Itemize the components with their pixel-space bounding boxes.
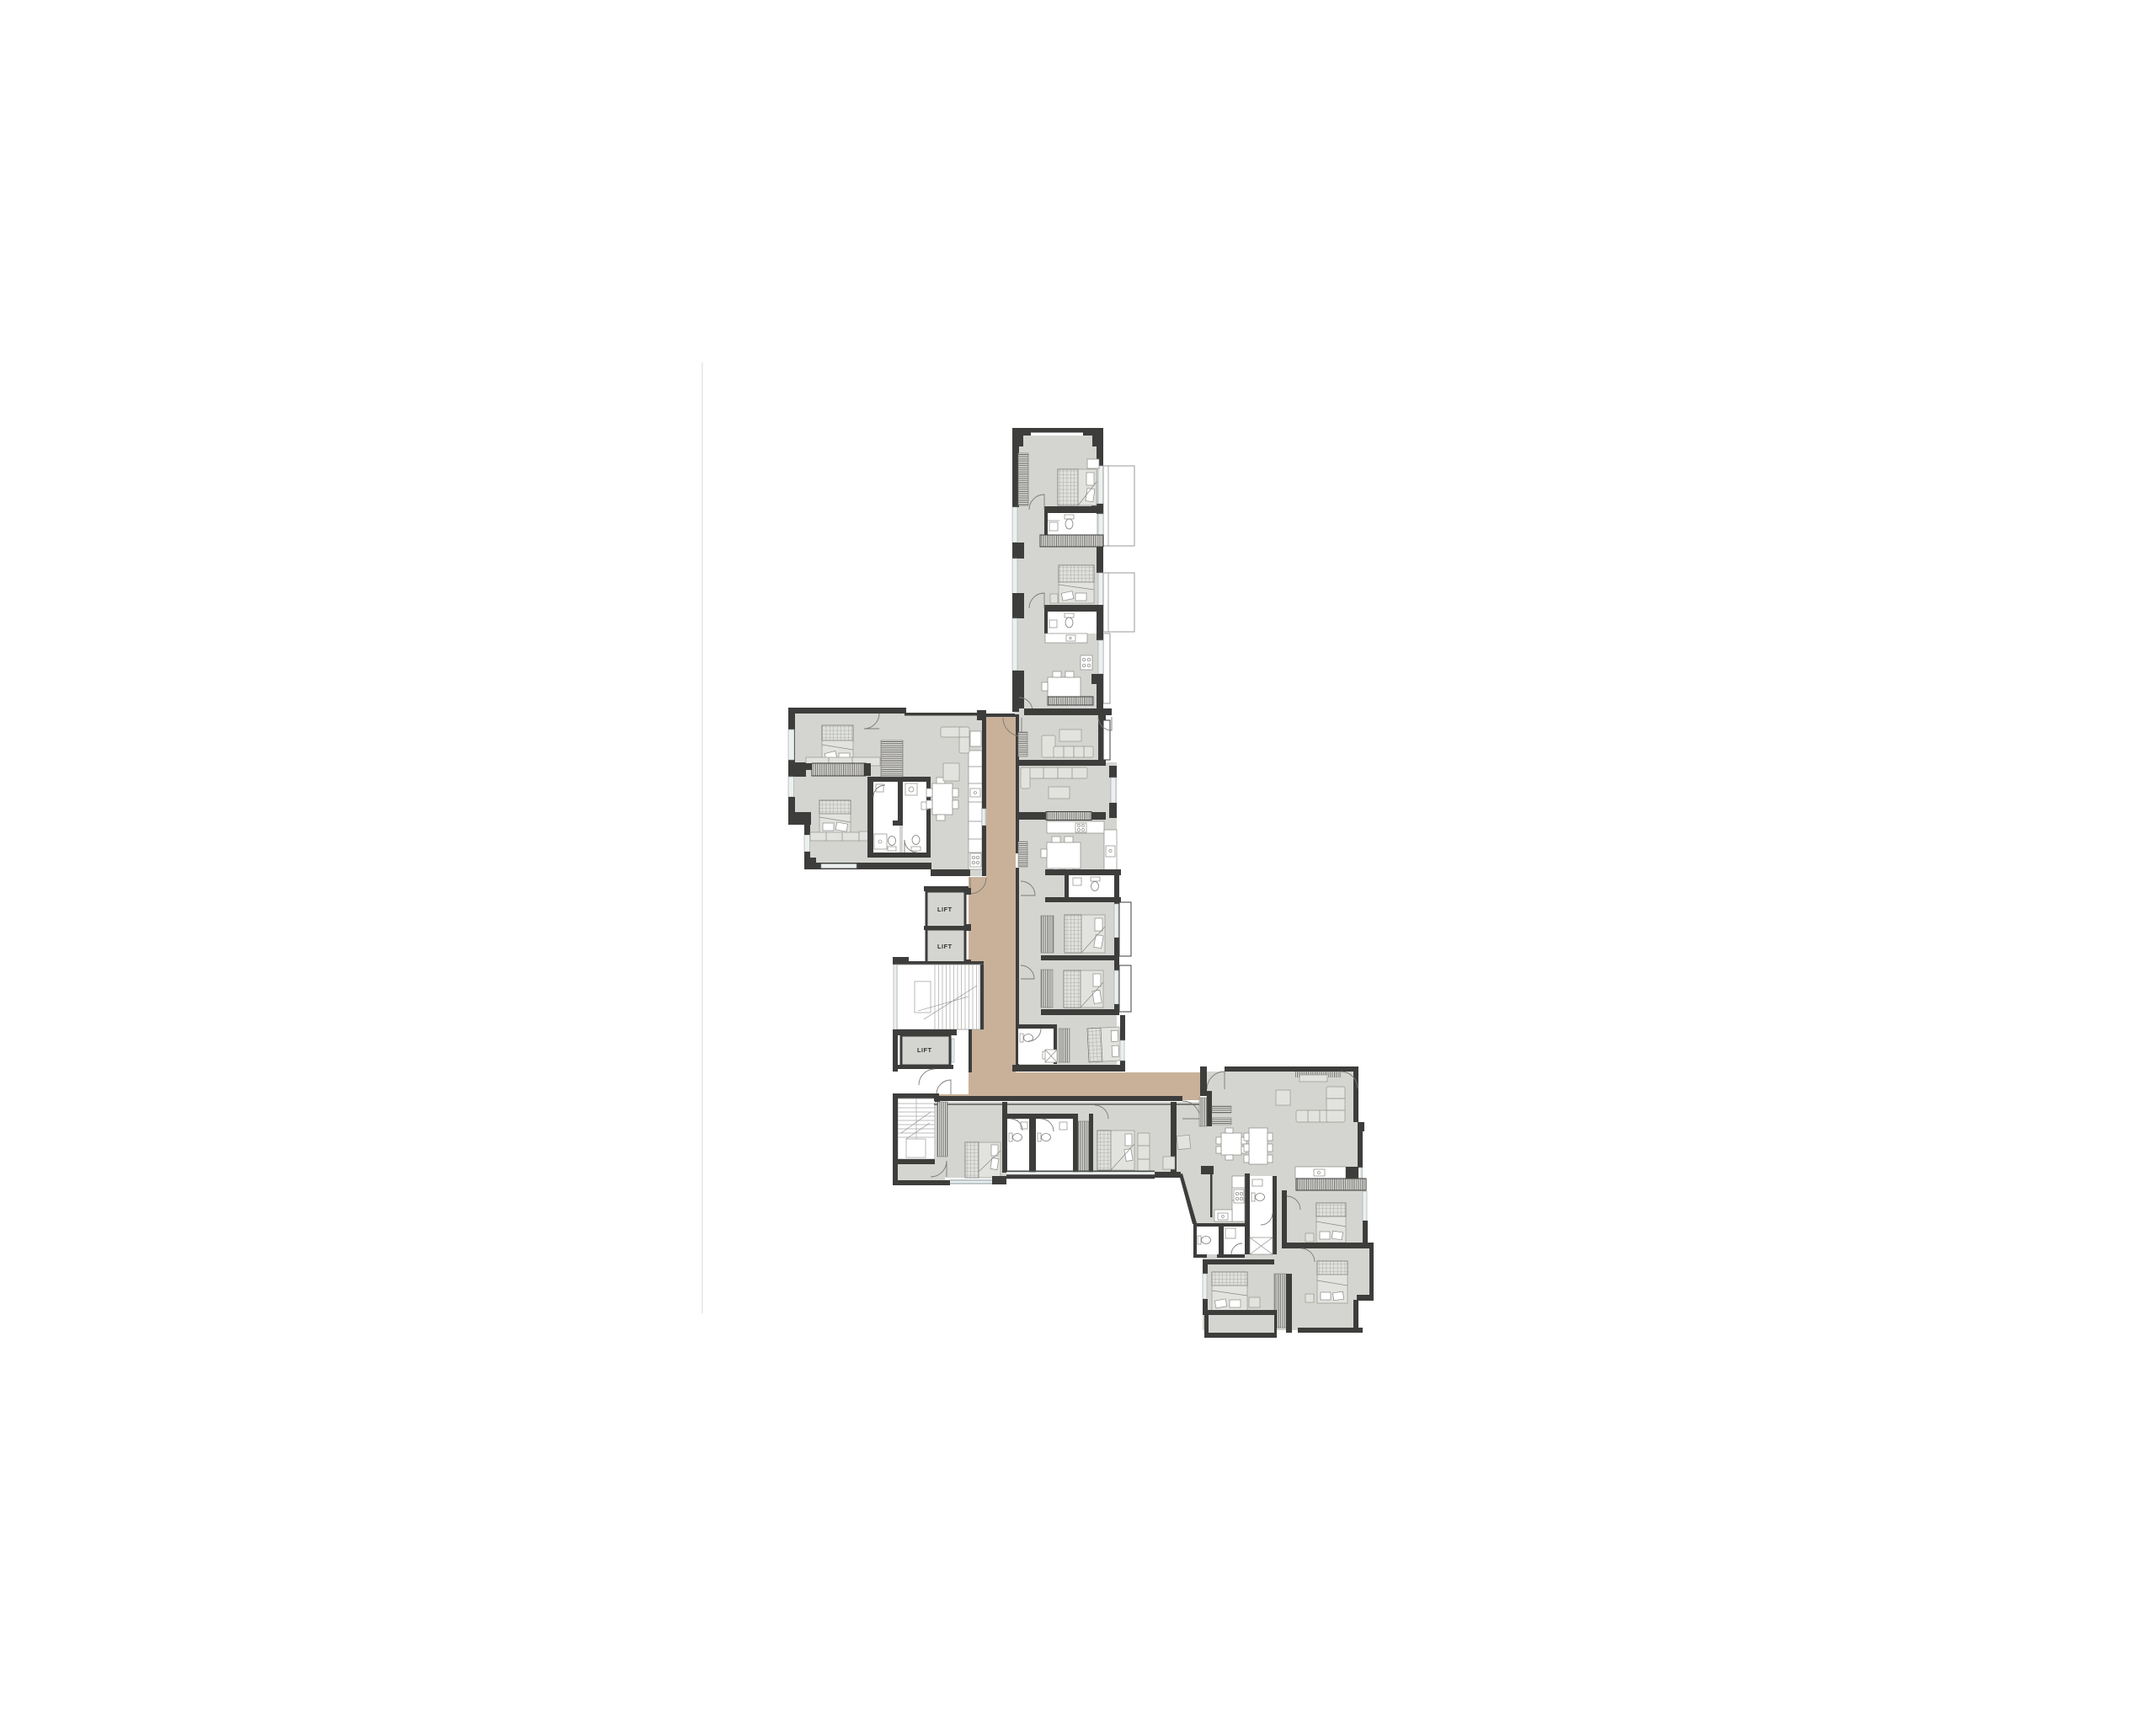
svg-text:LIFT: LIFT xyxy=(937,906,953,913)
svg-text:LIFT: LIFT xyxy=(937,943,953,950)
svg-text:LIFT: LIFT xyxy=(917,1046,932,1054)
